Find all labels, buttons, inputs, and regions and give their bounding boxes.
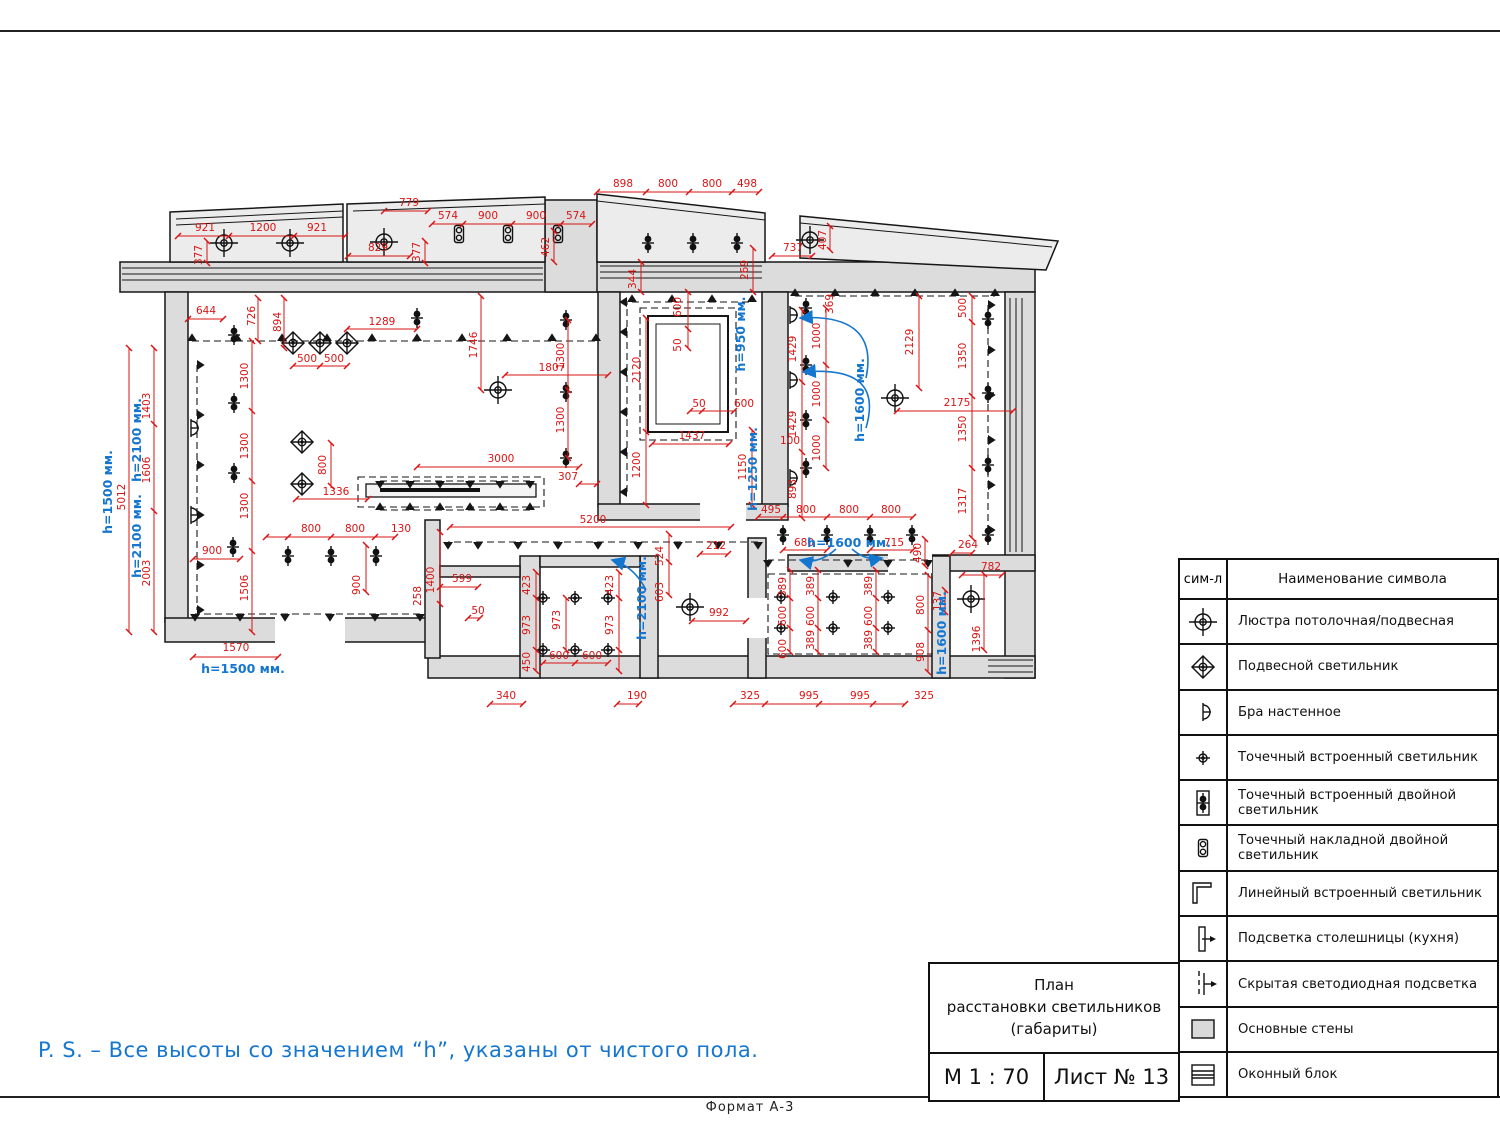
dim-label: 1000 — [811, 323, 823, 350]
drawing-title: План расстановки светильников (габариты) — [930, 964, 1178, 1054]
dim-label: 800 — [301, 523, 321, 535]
dim-label: 1429 — [787, 411, 799, 438]
walls — [120, 200, 1035, 678]
legend-row-label: Подсветка столешницы (кухня) — [1228, 917, 1497, 960]
dim-label: 2129 — [904, 329, 916, 356]
dim-label: 973 — [551, 610, 563, 630]
dim-label: 1746 — [468, 331, 480, 358]
dim-label: 307 — [558, 471, 578, 483]
dim-label: 600 — [805, 606, 817, 626]
legend-row-label: Точечный накладной двойной светильник — [1228, 826, 1497, 869]
dim-label: 2175 — [944, 397, 971, 409]
dim-label: 900 — [526, 210, 546, 222]
dim-label: 829 — [368, 242, 388, 254]
dim-label: 3000 — [488, 453, 515, 465]
height-label: h=1600 мм. — [807, 535, 891, 550]
dim-label: 407 — [817, 230, 829, 250]
wall-sconce-icon — [1180, 691, 1228, 734]
dim-label: 1350 — [957, 416, 969, 443]
recessed-spot-icon — [1180, 736, 1228, 779]
dim-label: 498 — [737, 178, 757, 190]
dim-label: 900 — [202, 545, 222, 557]
dim-label: 894 — [272, 312, 284, 332]
dim-label: 737 — [783, 242, 803, 254]
sheet-number-cell: Лист № 13 — [1045, 1054, 1178, 1100]
dim-label: 992 — [709, 607, 729, 619]
height-label: h=1600 мм. — [852, 358, 867, 442]
dim-label: 600 — [863, 606, 875, 626]
dim-label: 900 — [478, 210, 498, 222]
dim-label: 389 — [863, 630, 875, 650]
legend-row-label: Линейный встроенный светильник — [1228, 872, 1497, 915]
legend-row-label: Люстра потолочная/подвесная — [1228, 600, 1497, 643]
dim-label: 1300 — [239, 363, 251, 390]
dim-label: 5200 — [580, 514, 607, 526]
dim-label: 377 — [411, 242, 423, 262]
dim-label: 423 — [604, 575, 616, 595]
dim-label: 1300 — [555, 407, 567, 434]
dim-label: 1429 — [787, 336, 799, 363]
dim-label: 995 — [799, 690, 819, 702]
legend-row-label: Основные стены — [1228, 1008, 1497, 1051]
dim-label: 898 — [613, 178, 633, 190]
dim-label: 973 — [604, 615, 616, 635]
drawing-sheet: { "page": { "footer": "Формат А-3", "not… — [0, 0, 1500, 1125]
dim-label: 908 — [915, 642, 927, 662]
dim-label: 389 — [863, 576, 875, 596]
dim-label: 973 — [521, 615, 533, 635]
dim-label: 500 — [297, 353, 317, 365]
legend-row: Основные стены — [1180, 1006, 1497, 1051]
legend-row-label: Точечный встроенный двойной светильник — [1228, 781, 1497, 824]
dim-label: 600 — [777, 606, 789, 626]
height-label: h=2100 мм. — [634, 556, 649, 640]
dim-label: 800 — [839, 504, 859, 516]
dim-label: 1570 — [223, 642, 250, 654]
window-bands — [122, 266, 1033, 672]
dim-label: 369 — [824, 294, 836, 314]
height-label: h=2100 мм. — [129, 398, 144, 482]
dim-label: 800 — [796, 504, 816, 516]
floor-plan: 921 1200 921 377 779 829 377 574 900 900… — [0, 0, 1100, 760]
height-label: h=1500 мм. — [100, 450, 115, 534]
legend-row: Люстра потолочная/подвесная — [1180, 598, 1497, 643]
dim-label: 893 — [787, 479, 799, 499]
dim-label: 190 — [627, 690, 647, 702]
dim-label: 600 — [672, 297, 684, 317]
height-label: h=1250 мм. — [745, 427, 760, 511]
dim-label: 5012 — [116, 484, 128, 511]
height-label: h=2100 мм. — [129, 494, 144, 578]
legend-row-label: Подвесной светильник — [1228, 645, 1497, 688]
dim-label: 50 — [471, 605, 484, 617]
ps-note: P. S. – Все высоты со значением “h”, ука… — [38, 1038, 758, 1062]
dim-label: 644 — [196, 305, 216, 317]
dim-label: 500 — [324, 353, 344, 365]
dim-label: 389 — [805, 576, 817, 596]
dim-label: 423 — [521, 575, 533, 595]
linear-fixture — [358, 477, 544, 510]
scale-cell: М 1 : 70 — [930, 1054, 1045, 1100]
countertop-light-icon — [1180, 917, 1228, 960]
hidden-led-icon — [1180, 962, 1228, 1005]
title-block: План расстановки светильников (габариты)… — [928, 962, 1180, 1102]
legend-row: Подсветка столешницы (кухня) — [1180, 915, 1497, 960]
dim-label: 1506 — [239, 574, 251, 601]
dim-label: 603 — [654, 582, 666, 602]
drawing-title-line2: расстановки светильников — [947, 997, 1161, 1019]
dim-label: 462 — [540, 237, 552, 257]
sheet-format-label: Формат А-3 — [0, 1100, 1500, 1115]
legend-row-label: Точечный встроенный светильник — [1228, 736, 1497, 779]
pendant-light-icon — [1180, 645, 1228, 688]
drawing-title-line1: План — [1034, 975, 1074, 997]
legend-header: сим-л Наименование символа — [1180, 560, 1497, 598]
surface-double-spot-icon — [1180, 826, 1228, 869]
dim-label: 600 — [582, 650, 602, 662]
dim-label: 340 — [496, 690, 516, 702]
legend-row: Точечный встроенный светильник — [1180, 734, 1497, 779]
dim-label: 900 — [351, 575, 363, 595]
dim-label: 389 — [777, 577, 789, 597]
legend-table: сим-л Наименование символа Люстра потоло… — [1178, 558, 1499, 1098]
legend-row: Подвесной светильник — [1180, 643, 1497, 688]
legend-header-name: Наименование символа — [1228, 560, 1497, 598]
window-block-icon — [1180, 1053, 1228, 1096]
dim-label: 1300 — [239, 493, 251, 520]
legend-row: Точечный накладной двойной светильник — [1180, 824, 1497, 869]
dim-label: 726 — [246, 306, 258, 326]
dim-label: 800 — [702, 178, 722, 190]
dim-label: 212 — [706, 540, 726, 552]
dim-label: 1317 — [957, 488, 969, 515]
dim-label: 995 — [850, 690, 870, 702]
dim-label: 921 — [195, 222, 215, 234]
dim-label: 325 — [740, 690, 760, 702]
dim-label: 50 — [692, 398, 705, 410]
dim-label: 524 — [654, 546, 666, 566]
dim-label: 800 — [915, 595, 927, 615]
dim-label: 50 — [672, 338, 684, 351]
dim-label: 574 — [566, 210, 586, 222]
dim-label: 800 — [345, 523, 365, 535]
legend-row: Точечный встроенный двойной светильник — [1180, 779, 1497, 824]
dim-label: 377 — [193, 245, 205, 265]
legend-row-label: Оконный блок — [1228, 1053, 1497, 1096]
dim-label: 782 — [981, 561, 1001, 573]
main-walls-icon — [1180, 1008, 1228, 1051]
recessed-double-spot-icon — [1180, 781, 1228, 824]
dim-label: 450 — [521, 652, 533, 672]
dim-label: 389 — [805, 630, 817, 650]
legend-row-label: Бра настенное — [1228, 691, 1497, 734]
dim-label: 1336 — [323, 486, 350, 498]
height-label: h=1600 мм. — [934, 591, 949, 675]
dim-label: 1396 — [971, 625, 983, 652]
dim-label: 800 — [317, 455, 329, 475]
dim-label: 100 — [780, 435, 800, 447]
dim-label: 1350 — [957, 343, 969, 370]
dim-label: 1437 — [679, 430, 706, 442]
dim-label: 600 — [777, 639, 789, 659]
dim-label: 344 — [627, 269, 639, 289]
dim-label: 800 — [658, 178, 678, 190]
legend-row: Скрытая светодиодная подсветка — [1180, 960, 1497, 1005]
dim-label: 1000 — [811, 381, 823, 408]
dim-label: 258 — [412, 586, 424, 606]
dim-label: 130 — [391, 523, 411, 535]
balconies — [170, 194, 1058, 270]
dim-label: 800 — [881, 504, 901, 516]
dim-label: 269 — [739, 260, 751, 280]
dim-label: 1200 — [250, 222, 277, 234]
dim-label: 2120 — [631, 357, 643, 384]
legend-row: Бра настенное — [1180, 689, 1497, 734]
dim-label: 574 — [438, 210, 458, 222]
dim-label: 1000 — [811, 435, 823, 462]
dim-label: 1300 — [555, 343, 567, 370]
dim-label: 1289 — [369, 316, 396, 328]
dim-label: 1300 — [239, 433, 251, 460]
legend-row: Линейный встроенный светильник — [1180, 870, 1497, 915]
dim-label: 600 — [549, 650, 569, 662]
dim-label: 325 — [914, 690, 934, 702]
dim-label: 599 — [452, 573, 472, 585]
dim-label: 500 — [957, 298, 969, 318]
linear-recessed-icon — [1180, 872, 1228, 915]
height-label: h=950 мм. — [733, 297, 748, 372]
legend-row-label: Скрытая светодиодная подсветка — [1228, 962, 1497, 1005]
dim-label: 779 — [399, 197, 419, 209]
dim-label: 1200 — [631, 452, 643, 479]
dim-label: 1400 — [425, 567, 437, 594]
dim-label: 921 — [307, 222, 327, 234]
legend-header-symbol: сим-л — [1180, 560, 1228, 598]
dim-label: 264 — [958, 539, 978, 551]
dim-label: 495 — [761, 504, 781, 516]
drawing-title-line3: (габариты) — [1010, 1019, 1097, 1041]
height-label: h=1500 мм. — [201, 661, 285, 676]
hidden-led-lines — [192, 296, 995, 654]
chandelier-icon — [1180, 600, 1228, 643]
legend-row: Оконный блок — [1180, 1051, 1497, 1096]
dim-label: 490 — [912, 543, 924, 563]
dim-label: 600 — [734, 398, 754, 410]
